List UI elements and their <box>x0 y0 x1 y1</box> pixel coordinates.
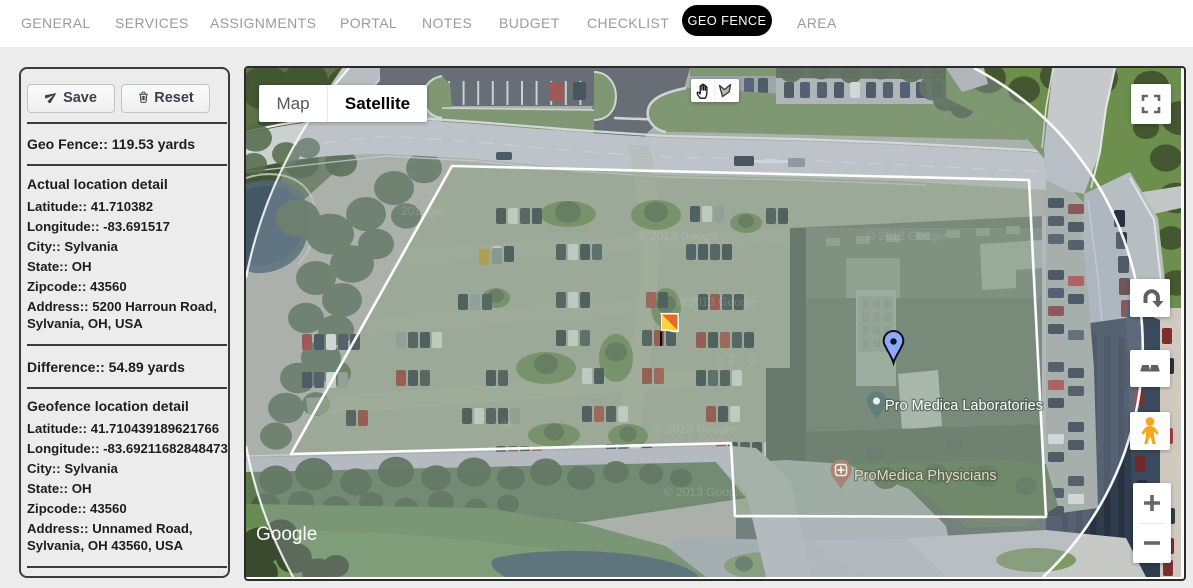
svg-text:Pro Medica Laboratories: Pro Medica Laboratories <box>885 398 1043 414</box>
svg-text:ProMedica Physicians: ProMedica Physicians <box>854 468 997 484</box>
svg-text:Google: Google <box>256 524 317 545</box>
